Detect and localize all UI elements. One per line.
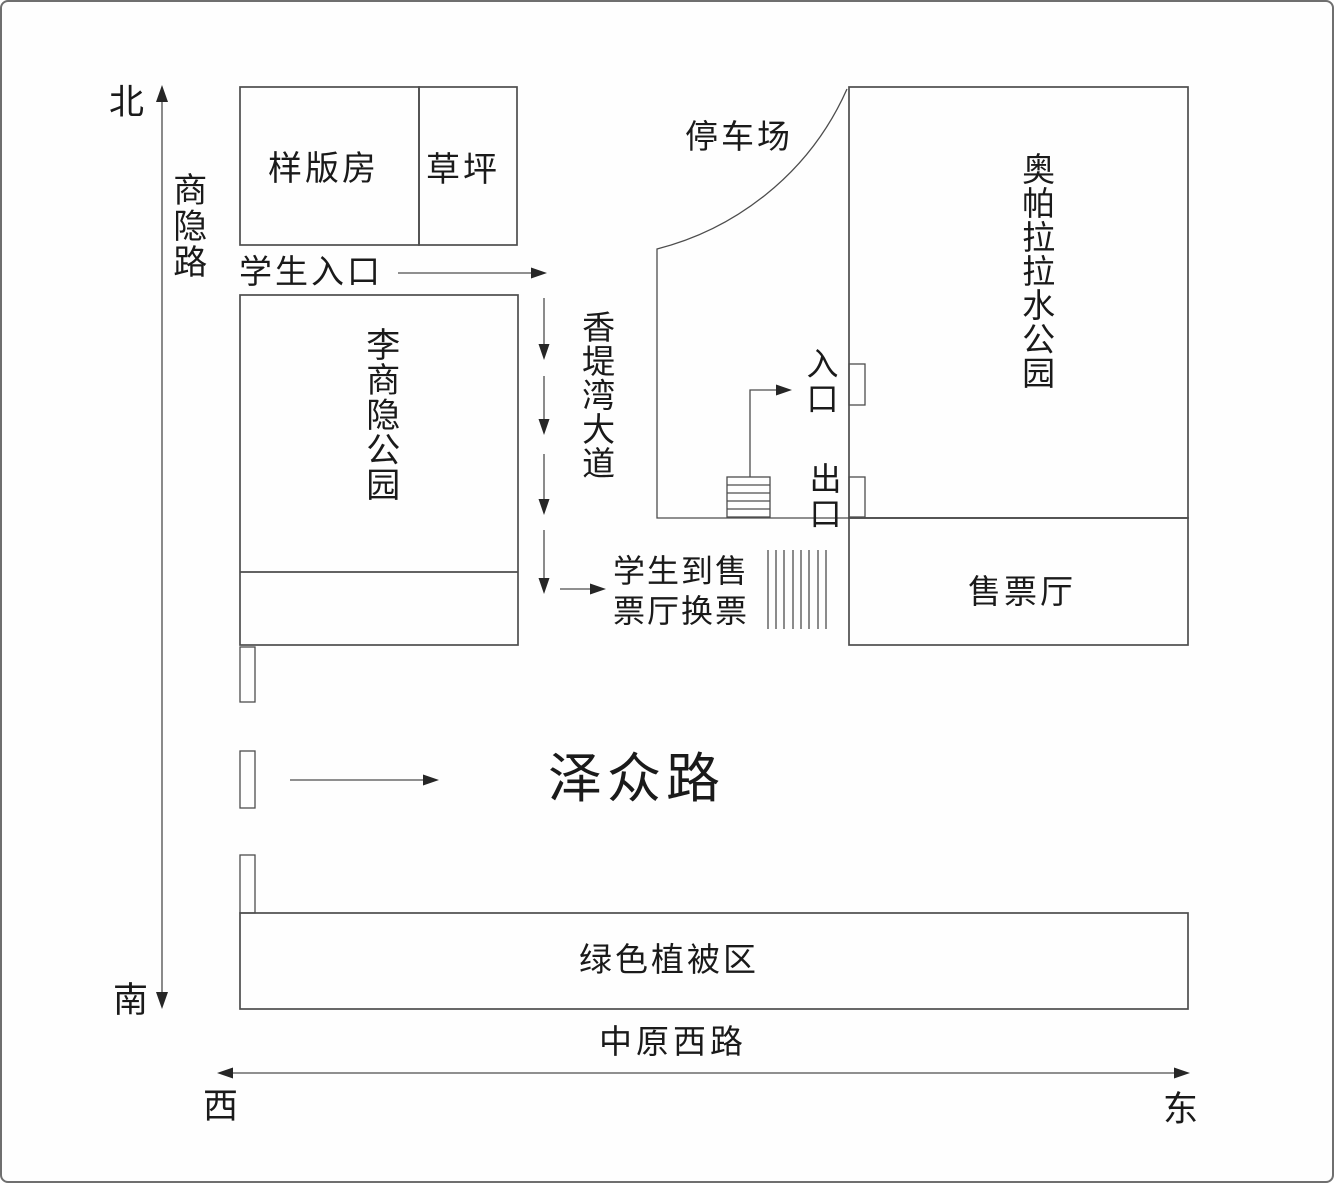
xiangdiwan-avenue-label: 香堤湾大道: [578, 310, 614, 480]
lawn-label: 草坪: [426, 152, 500, 189]
exit-label: 出口: [806, 462, 841, 532]
turnstile-steps-icon: [727, 477, 770, 517]
roadside-gate-1: [240, 647, 255, 702]
xiangdiwan-avenue-arrows: [539, 298, 550, 594]
entrance-path-arrow: [750, 385, 792, 478]
water-park-label: 奥帕拉拉水公园: [1018, 152, 1054, 390]
crosswalk-hatching-icon: [768, 550, 826, 629]
roadside-gate-2: [240, 751, 255, 808]
west-label: 西: [203, 1088, 238, 1126]
zhongyuan-west-road-label: 中原西路: [599, 1024, 747, 1060]
parking-lot-label: 停车场: [685, 119, 793, 155]
north-label: 北: [109, 84, 144, 122]
east-label: 东: [1163, 1091, 1198, 1129]
zezhong-road-arrow: [290, 775, 439, 786]
zhongyuan-road-arrow: [217, 1068, 1190, 1079]
student-entrance-arrow: [398, 268, 547, 279]
ticket-hall-label: 售票厅: [968, 574, 1076, 610]
green-vegetation-label: 绿色植被区: [579, 942, 759, 978]
entrance-gate-icon: [849, 364, 865, 405]
entrance-label: 入口: [803, 347, 838, 417]
roadside-gate-3: [240, 855, 255, 913]
exchange-note-arrow: [560, 584, 606, 595]
exit-gate-icon: [849, 477, 865, 517]
exchange-note-label: 学生到售票厅换票: [613, 551, 765, 631]
north-south-road-arrow: [156, 85, 168, 1009]
li-shangyin-park-label: 李商隐公园: [361, 327, 398, 502]
shangyin-road-label: 商隐路: [168, 172, 205, 280]
student-entrance-label: 学生入口: [239, 254, 383, 290]
sample-room-label: 样版房: [268, 151, 379, 188]
zezhong-road-label: 泽众路: [548, 750, 725, 808]
schematic-map-canvas: 北 南 西 东 商隐路 香堤湾大道 泽众路 中原西路 样版房 草坪 李商隐公园 …: [0, 0, 1334, 1183]
south-label: 南: [113, 982, 148, 1020]
